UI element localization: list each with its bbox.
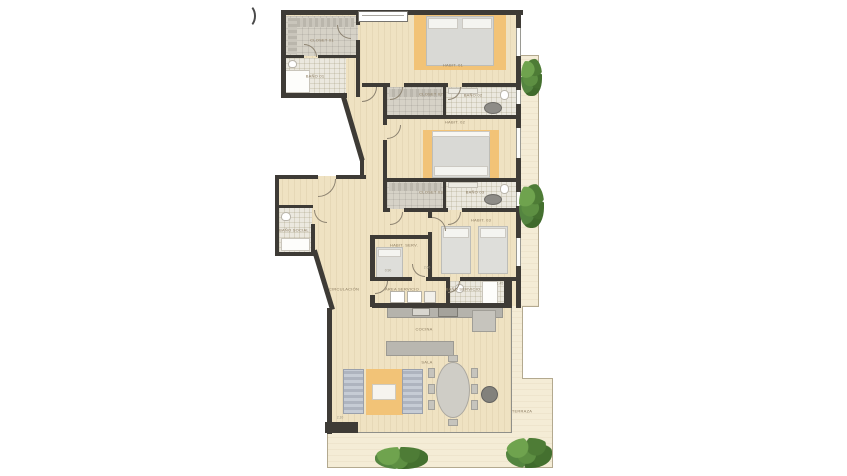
coffee-table-icon (372, 384, 396, 400)
room-label-bano-social: BAÑO SOCIAL (279, 229, 309, 233)
wall-segment (462, 83, 520, 87)
wall-segment (370, 235, 375, 281)
dryer-icon (407, 291, 422, 303)
wall-segment (279, 205, 313, 208)
chair-icon (471, 384, 478, 394)
wall-segment (281, 93, 347, 98)
wall-segment (284, 55, 304, 58)
parapet-line (521, 55, 539, 56)
parapet-line (522, 378, 553, 379)
wall-segment (275, 175, 279, 255)
window (516, 238, 521, 266)
sideboard-icon (386, 341, 454, 356)
room-label-bano-servicio: BAÑO SERVICIO (446, 288, 481, 292)
wall-segment (404, 83, 448, 87)
wall-segment (360, 159, 364, 178)
stove-icon (438, 307, 458, 317)
wall-segment (383, 178, 520, 182)
entry-niche-line (362, 15, 404, 16)
wall-segment (318, 55, 356, 58)
room-label-sala: SALA (421, 361, 432, 365)
chair-icon (448, 419, 458, 426)
wall-segment (443, 181, 446, 211)
sink-counter-icon (448, 182, 478, 188)
room-label-habit-serv: HABIT. SERV. (390, 244, 418, 248)
wall-segment (327, 308, 332, 434)
parapet-line (552, 378, 553, 468)
chair-icon (471, 368, 478, 378)
plant-icon (521, 58, 542, 96)
dimension-label: 2.10 (337, 416, 344, 420)
logo-mark-icon (238, 4, 256, 28)
side-table-icon (481, 386, 498, 403)
room-label-closet02: CLOSET 02 (419, 93, 443, 97)
room-label-area-servicio: ÁREA SERVICIO (385, 288, 419, 292)
fridge-icon (472, 310, 496, 332)
room-label-closet03: CLOSET 03 (419, 191, 443, 195)
plant-icon (506, 438, 552, 468)
pillow-icon (480, 228, 506, 238)
bathtub-icon (484, 102, 502, 114)
bench-icon (432, 131, 490, 137)
pillow-icon (462, 18, 492, 29)
parapet-line (522, 306, 523, 378)
toilet-icon (281, 212, 291, 221)
wall-segment (383, 115, 520, 119)
dimension-label: 1.45 (497, 282, 504, 286)
chair-icon (428, 368, 435, 378)
room-label-terraza: TERRAZA (512, 410, 532, 414)
plant-icon (375, 447, 428, 469)
plant-icon (519, 183, 544, 228)
toilet-icon (500, 184, 509, 194)
kitchen-sink-icon (412, 308, 430, 316)
dining-table-icon (436, 362, 470, 418)
dimension-label: 0.90 (385, 269, 392, 273)
wall-segment (325, 422, 358, 433)
window (516, 90, 521, 104)
washer-icon (390, 291, 405, 303)
toilet-icon (288, 60, 297, 68)
bathtub-icon (484, 194, 502, 205)
wall-segment (275, 252, 315, 256)
toilet-icon (500, 90, 509, 100)
pillow-icon (434, 166, 488, 176)
room-label-bano02: BAÑO 02 (464, 94, 483, 98)
pillow-icon (443, 228, 469, 238)
room-label-habit02: HABIT. 02 (445, 121, 465, 125)
entry-niche (358, 11, 408, 22)
laundry-sink-icon (424, 291, 436, 303)
wall-segment (443, 87, 446, 117)
wall-segment (383, 140, 387, 180)
shower-icon (482, 281, 498, 304)
closet-shelf-icon (288, 18, 297, 54)
pillow-icon (378, 249, 401, 257)
chair-icon (428, 384, 435, 394)
room-label-cocina: COCINA (416, 328, 433, 332)
wall-segment (275, 175, 318, 179)
wall-segment (404, 208, 448, 212)
parapet-line (522, 306, 539, 307)
terrace-strip-floor (511, 306, 522, 378)
pillow-icon (428, 18, 458, 29)
wall-segment (383, 85, 387, 125)
window (516, 28, 521, 56)
floor-plan-canvas: CLOSET 01 BAÑO 01 HABIT. 01 CLOSET 02 BA… (0, 0, 847, 476)
wall-segment (281, 10, 286, 98)
shower-icon (281, 238, 310, 251)
room-label-bano01: BAÑO 01 (306, 75, 325, 79)
parapet-line (327, 433, 328, 468)
chair-icon (448, 355, 458, 362)
room-label-habit03: HABIT. 03 (471, 219, 491, 223)
chair-icon (428, 400, 435, 410)
wall-segment (372, 303, 512, 308)
wall-segment (372, 235, 432, 239)
wall-segment (383, 178, 387, 212)
dimension-label: 2.60 (424, 266, 431, 270)
wall-segment (383, 208, 390, 212)
wall-segment (462, 208, 520, 212)
sofa-icon (343, 369, 364, 414)
room-label-circulacion: CIRCULACIÓN (329, 288, 359, 292)
sofa-icon (402, 369, 423, 414)
room-label-closet01: CLOSET 01 (310, 39, 334, 43)
chair-icon (471, 400, 478, 410)
room-label-habit01: HABIT. 01 (443, 64, 463, 68)
wall-segment (356, 40, 360, 97)
window (516, 128, 521, 158)
glass-wall (331, 432, 512, 433)
room-label-bano03: BAÑO 03 (466, 191, 485, 195)
wall-segment (426, 277, 448, 281)
